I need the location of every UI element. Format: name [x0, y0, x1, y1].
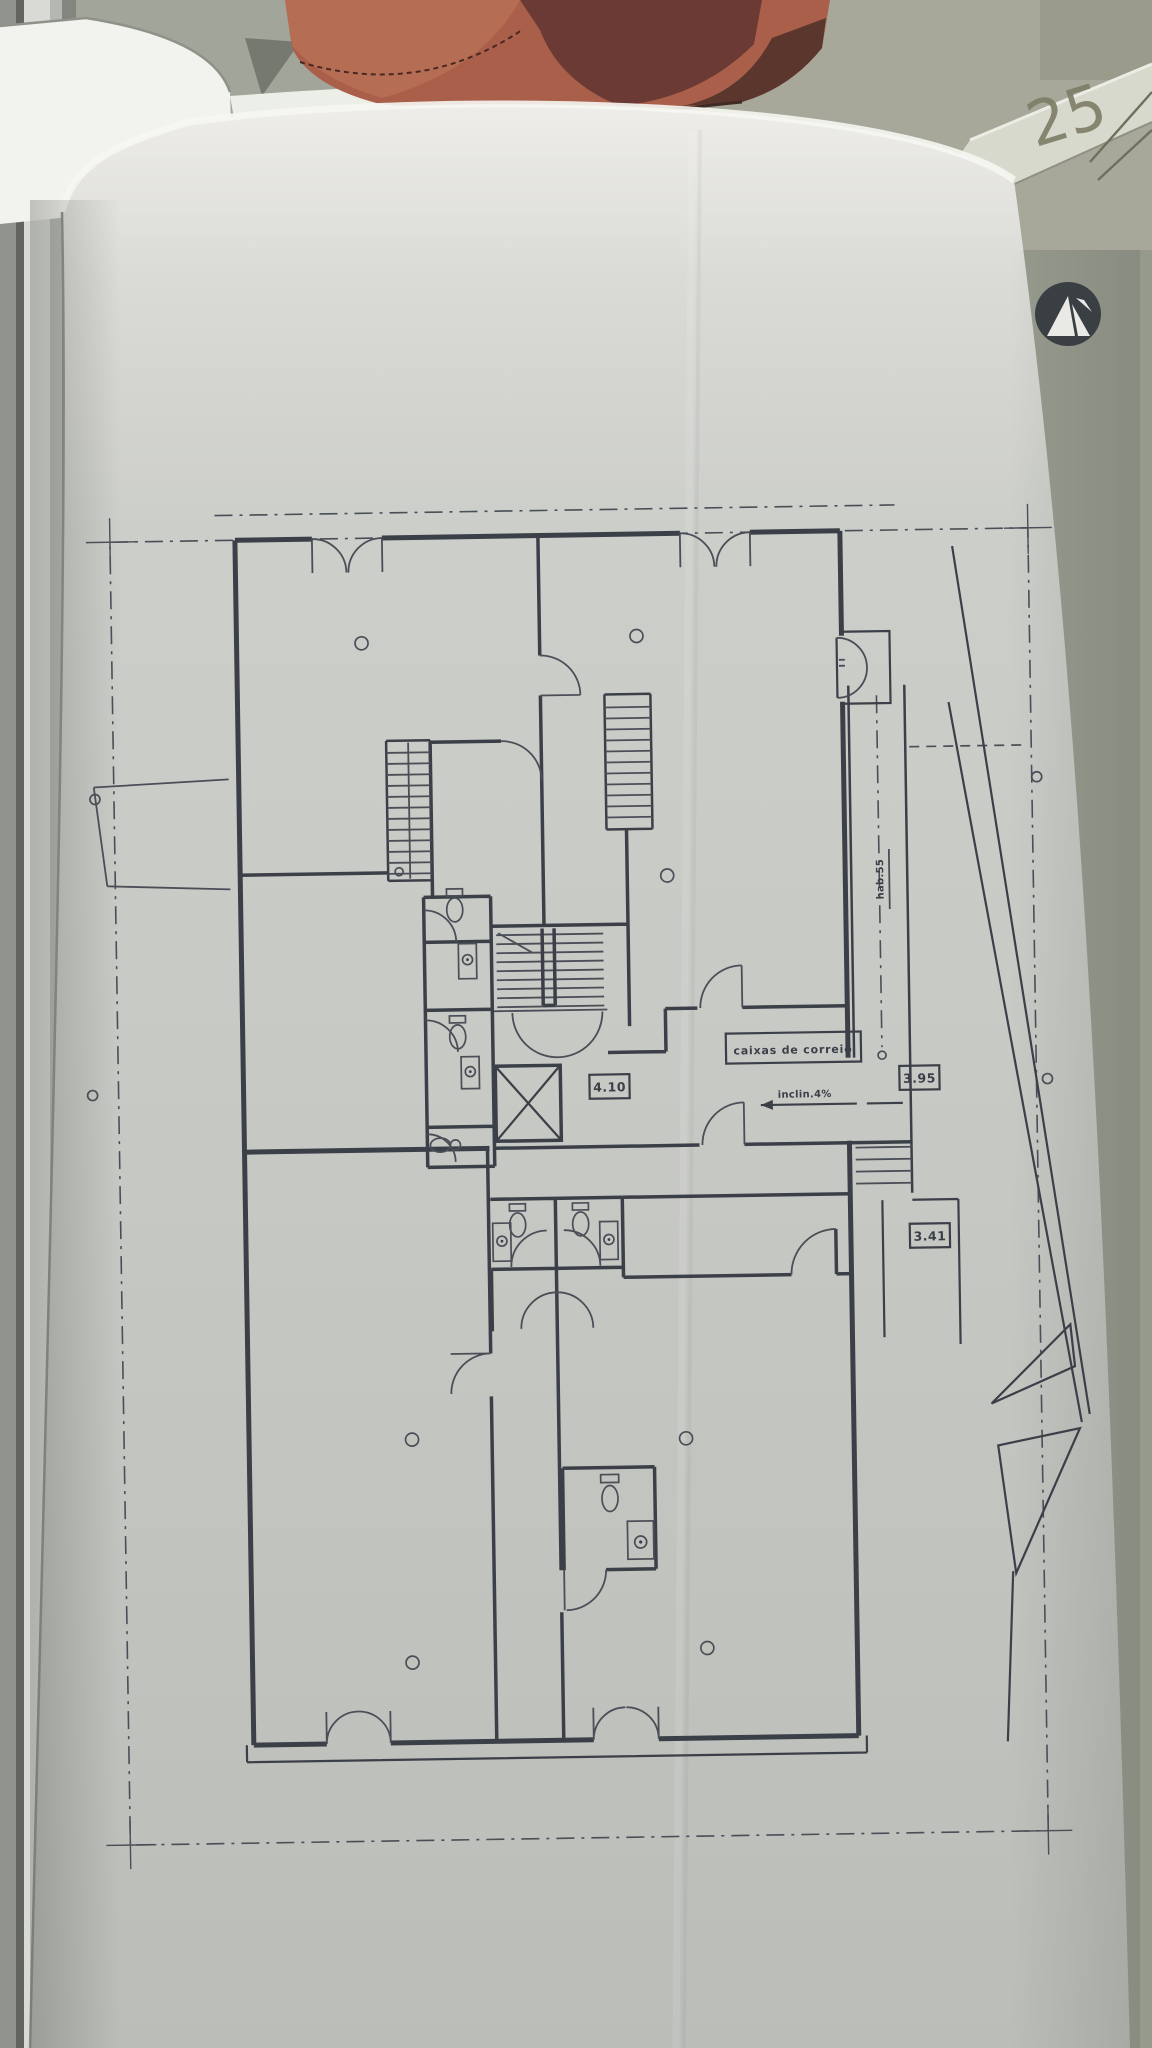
- mailboxes-label: caixas de correio: [733, 1043, 852, 1058]
- hall-width-dim: 4.10: [593, 1079, 626, 1095]
- walkway-width-dim: 3.95: [903, 1070, 936, 1086]
- leather-object: [285, 0, 830, 114]
- note-underline: [889, 849, 890, 909]
- architect-logo: [1035, 282, 1101, 346]
- walkway-axis-note: hab.55: [875, 859, 887, 900]
- lower-walkway-width-dim: 3.41: [913, 1228, 946, 1244]
- photo-canvas: 25: [0, 0, 1152, 2048]
- scene-photo: 25: [0, 0, 1152, 2048]
- ramp-slope-note: inclin.4%: [778, 1089, 832, 1101]
